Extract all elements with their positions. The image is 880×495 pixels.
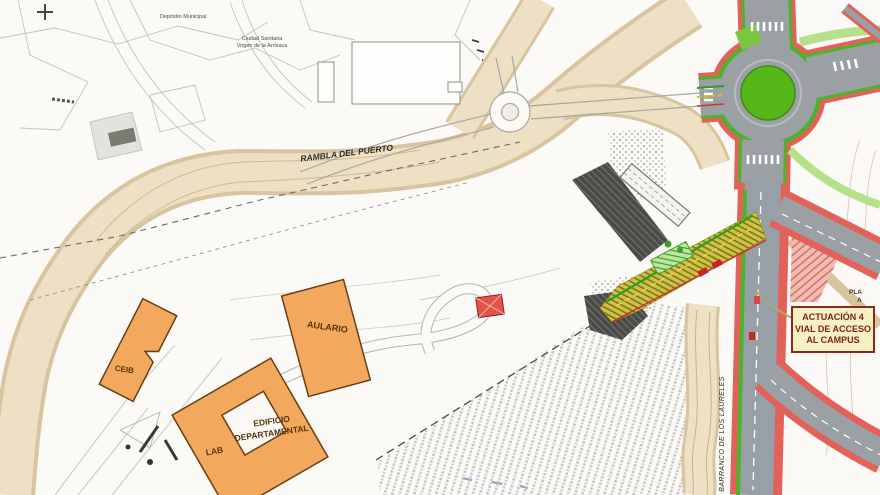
new-roundabout (697, 0, 880, 205)
tree-symbol (677, 247, 683, 253)
ciudad-sanitaria-label-1: Ciudad Sanitaria (242, 36, 284, 42)
map-svg: RAMBLA DEL PUERTO BARRANCO DE LOS LAUREL… (0, 0, 880, 495)
illegible-label-smudge (52, 99, 74, 102)
red-building (476, 294, 505, 317)
annotation-line-2: VIAL DE ACCESO (794, 324, 872, 336)
campus-buildings (99, 279, 370, 495)
building-ceib (99, 299, 176, 402)
roundabout-center-island (741, 66, 795, 120)
school-building-outline (352, 42, 460, 104)
bottom-left-dark-marks (140, 426, 177, 460)
tree-symbol (665, 241, 672, 248)
deposito-label: Depósito Municipal (160, 14, 206, 20)
cross-symbol-icon (37, 4, 53, 20)
annotation-line-3: AL CAMPUS (794, 335, 872, 347)
barranco-label: BARRANCO DE LOS LAURELES (719, 376, 726, 491)
ciudad-sanitaria-label-2: Virgen de la Arrixaca (237, 43, 289, 49)
plan-canvas: RAMBLA DEL PUERTO BARRANCO DE LOS LAUREL… (0, 0, 880, 495)
annotation-callout: ACTUACIÓN 4 VIAL DE ACCESO AL CAMPUS (791, 306, 875, 353)
edge-partial-label: PLA A (849, 289, 880, 305)
annotation-line-1: ACTUACIÓN 4 (794, 312, 872, 324)
existing-buildings-outline (318, 42, 462, 104)
barranco-band (692, 305, 711, 495)
